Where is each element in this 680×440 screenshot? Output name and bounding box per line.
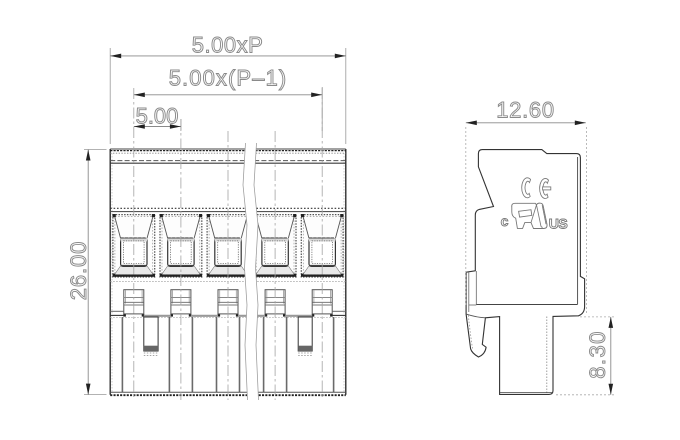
svg-text:US: US [549,215,568,231]
svg-text:26.00: 26.00 [66,241,91,301]
svg-text:5.00x(P–1): 5.00x(P–1) [169,66,288,91]
svg-text:5.00xP: 5.00xP [192,33,264,58]
svg-text:12.60: 12.60 [496,98,555,123]
svg-text:5.00: 5.00 [136,104,179,129]
svg-text:8.30: 8.30 [585,330,610,378]
svg-text:c: c [501,213,509,229]
